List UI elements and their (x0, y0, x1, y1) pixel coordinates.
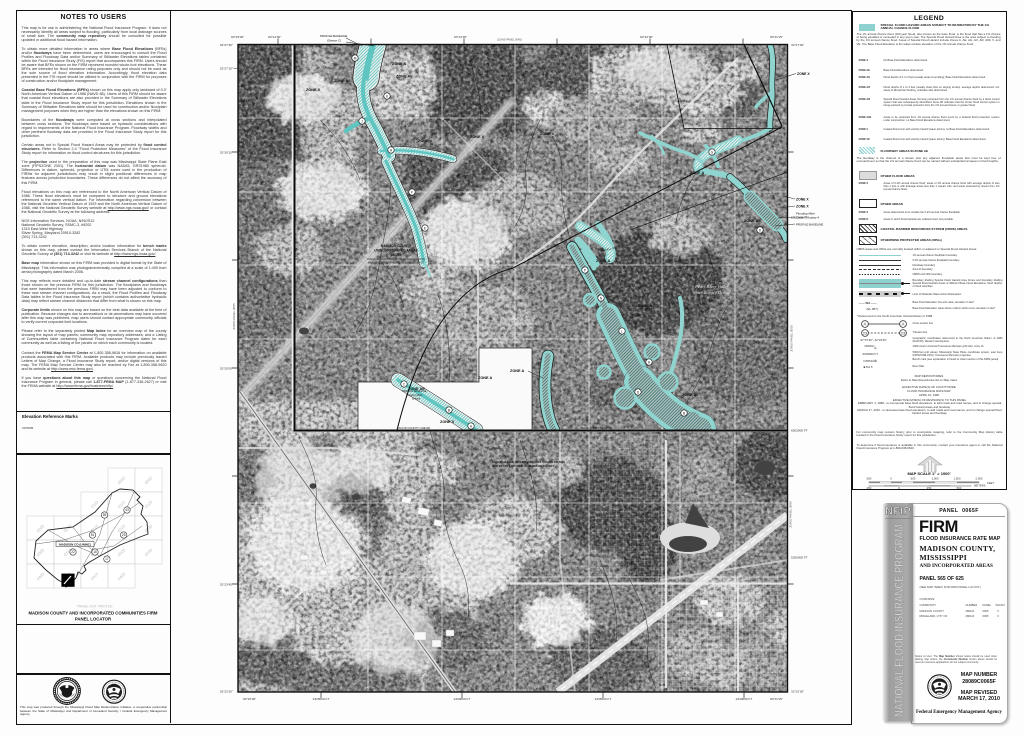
svg-text:43: 43 (125, 508, 129, 512)
svg-text:G: G (711, 150, 714, 154)
svg-text:32°27'15": 32°27'15" (220, 67, 233, 71)
svg-text:MADISON COUNTY AND INCORPORATE: MADISON COUNTY AND INCORPORATED COMMUNIT… (28, 611, 157, 616)
svg-text:90°15'00": 90°15'00" (243, 697, 256, 701)
svg-text:Hogging Mine: Hogging Mine (406, 393, 423, 397)
svg-text:A: A (901, 321, 904, 326)
svg-text:17: 17 (105, 557, 109, 561)
svg-text:PROFILE BASELINE: PROFILE BASELINE (320, 34, 347, 38)
svg-text:55: 55 (103, 513, 107, 517)
svg-text:32°25'00": 32°25'00" (220, 367, 233, 371)
svg-text:90°14'30": 90°14'30" (268, 35, 281, 39)
svg-text:1,000: 1,000 (931, 477, 938, 481)
svg-text:1,500: 1,500 (953, 477, 960, 481)
svg-text:OLD W COUNTY LINE RD: OLD W COUNTY LINE RD (580, 426, 612, 430)
svg-text:500: 500 (866, 477, 871, 481)
svg-text:ZONE AE: ZONE AE (334, 79, 351, 83)
svg-text:ZONE X: ZONE X (470, 135, 485, 139)
svg-text:MADISON CO (UNINC): MADISON CO (UNINC) (59, 543, 91, 547)
svg-text:0: 0 (890, 477, 892, 481)
svg-text:J: J (361, 119, 363, 123)
svg-text:16: 16 (93, 550, 97, 554)
svg-text:PANEL LOCATOR: PANEL LOCATOR (75, 617, 112, 622)
svg-text:L: L (621, 329, 623, 333)
svg-text:ZONE AE: ZONE AE (396, 75, 413, 79)
svg-text:2340000 FT: 2340000 FT (736, 697, 753, 701)
svg-text:ZONE A: ZONE A (596, 259, 610, 263)
svg-text:23: 23 (900, 330, 905, 335)
svg-text:280229: 280229 (390, 253, 401, 257)
svg-text:M: M (354, 56, 357, 60)
svg-text:ZONE A: ZONE A (638, 304, 652, 308)
svg-text:N SOUTH LIVE RD: N SOUTH LIVE RD (295, 237, 299, 260)
svg-text:Branch: Branch (412, 397, 421, 401)
svg-text:ZONE A: ZONE A (510, 369, 524, 373)
svg-text:2,000: 2,000 (975, 477, 982, 481)
svg-text:ZONE A: ZONE A (690, 171, 704, 175)
svg-text:UNINCORPORATED AREAS: UNINCORPORATED AREAS (374, 248, 418, 252)
svg-text:ZONE AE: ZONE AE (744, 219, 761, 223)
svg-text:(JOINS PANEL 0045): (JOINS PANEL 0045) (497, 38, 522, 42)
svg-text:6503000 FT: 6503000 FT (791, 429, 808, 433)
svg-text:32°22'30": 32°22'30" (220, 690, 233, 694)
svg-text:90°13'45": 90°13'45" (454, 35, 467, 39)
svg-text:ZONE A: ZONE A (478, 376, 492, 380)
svg-text:ZONE X: ZONE X (440, 420, 455, 424)
svg-text:PROFILE BASELINE: PROFILE BASELINE (402, 389, 427, 393)
svg-text:22: 22 (71, 550, 75, 554)
svg-text:ZONE X: ZONE X (796, 205, 809, 209)
svg-text:51: 51 (91, 533, 95, 537)
svg-text:500: 500 (956, 486, 961, 489)
svg-text:OLD W COUNTY LINE RD: OLD W COUNTY LINE RD (398, 426, 430, 430)
svg-text:A: A (863, 321, 866, 326)
svg-text:2325000 FT: 2325000 FT (313, 697, 330, 701)
svg-text:MAP EXCEPT OUTSIDE OF MADISON: MAP EXCEPT OUTSIDE OF MADISON COUNTY (492, 464, 555, 468)
svg-text:2335000 FT: 2335000 FT (595, 697, 612, 701)
svg-text:NATIONAL FLOOD INSURANCE PROGR: NATIONAL FLOOD INSURANCE PROGRAM (894, 524, 906, 717)
svg-text:FEET: FEET (987, 481, 994, 485)
svg-text:*PANEL NOT PRINTED: *PANEL NOT PRINTED (77, 605, 113, 609)
svg-text:5250000 FT: 5250000 FT (791, 556, 808, 560)
svg-text:MADISON COUNTY: MADISON COUNTY (381, 244, 412, 248)
svg-text:32°26'15": 32°26'15" (220, 151, 233, 155)
svg-text:ZONE X: ZONE X (418, 139, 433, 143)
svg-text:32°27'30": 32°27'30" (220, 43, 233, 47)
svg-text:Water Supply District: Water Supply District (692, 290, 732, 295)
svg-text:ZONE X: ZONE X (796, 198, 809, 202)
svg-text:ZONE A: ZONE A (392, 62, 406, 66)
svg-text:JOINS PANEL 0055: JOINS PANEL 0055 (232, 303, 236, 330)
svg-text:90°11'15": 90°11'15" (770, 35, 783, 39)
svg-text:90°11'15": 90°11'15" (770, 697, 783, 701)
svg-text:32°22'30": 32°22'30" (791, 690, 804, 694)
svg-text:90°12'30": 90°12'30" (640, 35, 653, 39)
svg-text:Creek Tributary 4: Creek Tributary 4 (796, 216, 819, 220)
svg-text:WITHIN TOWNSHIP 7 NORTH, RANGE: WITHIN TOWNSHIP 7 NORTH, RANGE 1 EAST (368, 261, 425, 265)
svg-text:250: 250 (926, 486, 931, 489)
svg-text:ZONE AE: ZONE AE (682, 393, 699, 397)
svg-text:PROFILE BASELINE: PROFILE BASELINE (796, 223, 823, 227)
svg-text:90°15'00": 90°15'00" (231, 35, 244, 39)
svg-text:NFIP: NFIP (885, 506, 911, 518)
svg-text:AREAS SHOWN ON THIS PANEL ARE: AREAS SHOWN ON THIS PANEL ARE LOCATED (367, 257, 425, 261)
svg-text:F: F (411, 190, 413, 194)
svg-text:ZONE X: ZONE X (797, 72, 810, 76)
svg-text:JOINS PANEL 0060: JOINS PANEL 0060 (790, 325, 794, 352)
svg-text:ZONE X: ZONE X (540, 132, 555, 136)
svg-text:25: 25 (122, 533, 126, 537)
svg-text:500: 500 (910, 477, 915, 481)
svg-text:32°23'45": 32°23'45" (220, 583, 233, 587)
svg-text:32°27'30": 32°27'30" (791, 43, 804, 47)
svg-text:23: 23 (862, 330, 867, 335)
svg-text:Pearl River Valley: Pearl River Valley (694, 284, 730, 289)
svg-text:(Stream C): (Stream C) (327, 39, 341, 43)
svg-text:METERS: METERS (974, 483, 986, 487)
svg-text:ZONE X: ZONE X (306, 88, 321, 92)
svg-text:250: 250 (866, 486, 871, 489)
svg-text:JOINS PANEL 0080: JOINS PANEL 0080 (789, 501, 793, 528)
svg-text:2330000 FT: 2330000 FT (454, 697, 471, 701)
